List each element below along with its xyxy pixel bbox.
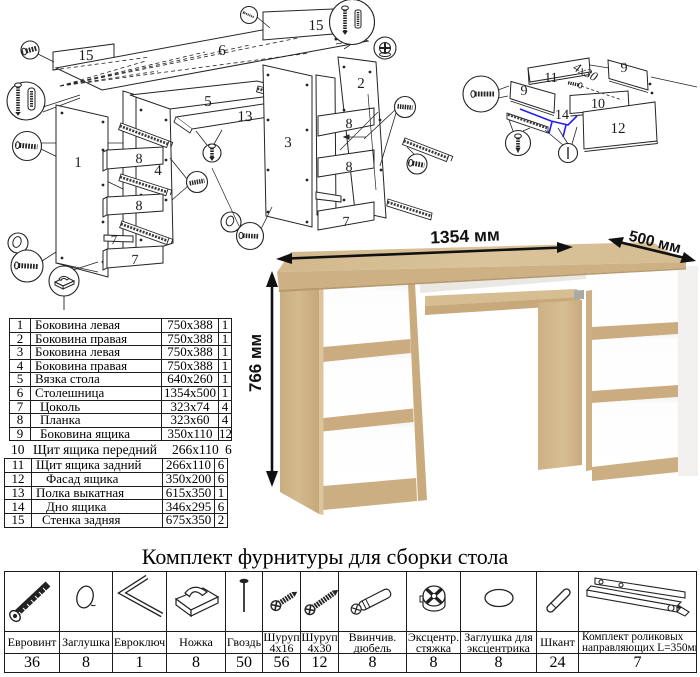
- svg-text:15: 15: [309, 18, 324, 34]
- svg-text:7: 7: [132, 253, 139, 268]
- svg-text:766 мм: 766 мм: [246, 334, 265, 392]
- svg-text:13: 13: [238, 109, 253, 125]
- svg-text:8: 8: [136, 152, 143, 167]
- svg-text:1354 мм: 1354 мм: [430, 224, 500, 247]
- svg-text:8: 8: [346, 117, 353, 132]
- svg-text:6: 6: [218, 43, 226, 59]
- svg-text:8: 8: [136, 199, 143, 214]
- svg-text:4x30: 4x30: [571, 59, 601, 84]
- svg-text:5: 5: [204, 94, 212, 110]
- svg-text:14: 14: [555, 108, 569, 123]
- svg-text:12: 12: [611, 121, 626, 137]
- svg-text:8: 8: [346, 160, 353, 175]
- svg-text:9: 9: [621, 61, 628, 76]
- svg-text:4: 4: [154, 163, 162, 179]
- svg-text:2: 2: [357, 76, 365, 92]
- svg-text:7: 7: [111, 232, 118, 247]
- svg-text:9: 9: [521, 84, 528, 99]
- svg-text:3: 3: [284, 135, 292, 151]
- svg-text:11: 11: [544, 71, 557, 86]
- svg-text:7: 7: [343, 215, 350, 230]
- svg-text:1: 1: [74, 155, 82, 171]
